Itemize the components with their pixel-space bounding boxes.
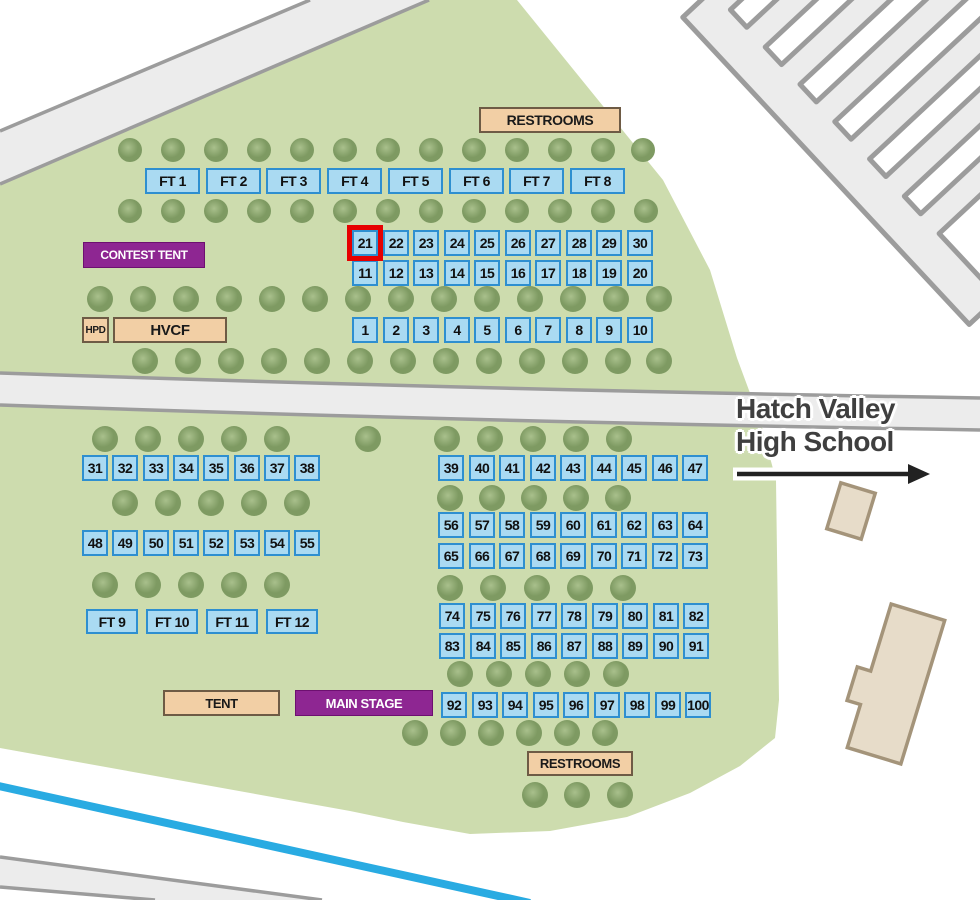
food-tent-ft-10[interactable]: FT 10	[146, 609, 198, 634]
booth-62[interactable]: 62	[621, 512, 647, 538]
booth-15[interactable]: 15	[474, 260, 500, 286]
school-label-line2: High School	[736, 425, 956, 458]
booth-90[interactable]: 90	[653, 633, 679, 659]
booth-40[interactable]: 40	[469, 455, 495, 481]
booth-72[interactable]: 72	[652, 543, 678, 569]
booth-55[interactable]: 55	[294, 530, 320, 556]
booth-43[interactable]: 43	[560, 455, 586, 481]
booth-74[interactable]: 74	[439, 603, 465, 629]
booth-52[interactable]: 52	[203, 530, 229, 556]
booth-84[interactable]: 84	[470, 633, 496, 659]
booth-24[interactable]: 24	[444, 230, 470, 256]
booth-44[interactable]: 44	[591, 455, 617, 481]
booth-79[interactable]: 79	[592, 603, 618, 629]
booth-51[interactable]: 51	[173, 530, 199, 556]
booth-94[interactable]: 94	[502, 692, 528, 718]
food-tent-ft-12[interactable]: FT 12	[266, 609, 318, 634]
food-tent-ft-4[interactable]: FT 4	[327, 168, 382, 194]
booth-45[interactable]: 45	[621, 455, 647, 481]
booth-97[interactable]: 97	[594, 692, 620, 718]
main-stage-label[interactable]: MAIN STAGE	[295, 690, 433, 716]
booth-54[interactable]: 54	[264, 530, 290, 556]
booth-65[interactable]: 65	[438, 543, 464, 569]
booth-83[interactable]: 83	[439, 633, 465, 659]
booth-11[interactable]: 11	[352, 260, 378, 286]
booth-19[interactable]: 19	[596, 260, 622, 286]
restrooms-bottom-label[interactable]: RESTROOMS	[527, 751, 633, 776]
booth-16[interactable]: 16	[505, 260, 531, 286]
booth-80[interactable]: 80	[622, 603, 648, 629]
booth-89[interactable]: 89	[622, 633, 648, 659]
booth-27[interactable]: 27	[535, 230, 561, 256]
food-tent-ft-11[interactable]: FT 11	[206, 609, 258, 634]
booth-6[interactable]: 6	[505, 317, 531, 343]
booth-85[interactable]: 85	[500, 633, 526, 659]
booth-18[interactable]: 18	[566, 260, 592, 286]
booth-82[interactable]: 82	[683, 603, 709, 629]
festival-map: 2122232425262728293011121314151617181920…	[0, 0, 980, 900]
booth-39[interactable]: 39	[438, 455, 464, 481]
booth-76[interactable]: 76	[500, 603, 526, 629]
booth-95[interactable]: 95	[533, 692, 559, 718]
booth-20[interactable]: 20	[627, 260, 653, 286]
school-label-line1: Hatch Valley	[736, 392, 956, 425]
booth-53[interactable]: 53	[234, 530, 260, 556]
booth-77[interactable]: 77	[531, 603, 557, 629]
booth-42[interactable]: 42	[530, 455, 556, 481]
food-tent-ft-9[interactable]: FT 9	[86, 609, 138, 634]
booth-7[interactable]: 7	[535, 317, 561, 343]
booth-50[interactable]: 50	[143, 530, 169, 556]
booth-29[interactable]: 29	[596, 230, 622, 256]
booth-10[interactable]: 10	[627, 317, 653, 343]
booth-32[interactable]: 32	[112, 455, 138, 481]
food-tent-ft-3[interactable]: FT 3	[266, 168, 321, 194]
booth-78[interactable]: 78	[561, 603, 587, 629]
food-tent-ft-8[interactable]: FT 8	[570, 168, 625, 194]
booth-33[interactable]: 33	[143, 455, 169, 481]
booth-41[interactable]: 41	[499, 455, 525, 481]
booth-87[interactable]: 87	[561, 633, 587, 659]
booth-4[interactable]: 4	[444, 317, 470, 343]
booth-2[interactable]: 2	[383, 317, 409, 343]
booth-1[interactable]: 1	[352, 317, 378, 343]
booth-63[interactable]: 63	[652, 512, 678, 538]
booth-66[interactable]: 66	[469, 543, 495, 569]
booth-23[interactable]: 23	[413, 230, 439, 256]
booth-13[interactable]: 13	[413, 260, 439, 286]
booth-67[interactable]: 67	[499, 543, 525, 569]
booth-96[interactable]: 96	[563, 692, 589, 718]
hvcf-label[interactable]: HVCF	[113, 317, 227, 343]
booth-28[interactable]: 28	[566, 230, 592, 256]
food-tent-ft-7[interactable]: FT 7	[509, 168, 564, 194]
booth-3[interactable]: 3	[413, 317, 439, 343]
booth-25[interactable]: 25	[474, 230, 500, 256]
booth-8[interactable]: 8	[566, 317, 592, 343]
contest-tent-label[interactable]: CONTEST TENT	[83, 242, 205, 268]
food-tent-ft-6[interactable]: FT 6	[449, 168, 504, 194]
booth-98[interactable]: 98	[624, 692, 650, 718]
booth-34[interactable]: 34	[173, 455, 199, 481]
booth-70[interactable]: 70	[591, 543, 617, 569]
booth-58[interactable]: 58	[499, 512, 525, 538]
booth-93[interactable]: 93	[472, 692, 498, 718]
booth-56[interactable]: 56	[438, 512, 464, 538]
booth-14[interactable]: 14	[444, 260, 470, 286]
booth-31[interactable]: 31	[82, 455, 108, 481]
booth-47[interactable]: 47	[682, 455, 708, 481]
booth-64[interactable]: 64	[682, 512, 708, 538]
food-tent-ft-2[interactable]: FT 2	[206, 168, 261, 194]
booth-46[interactable]: 46	[652, 455, 678, 481]
booth-17[interactable]: 17	[535, 260, 561, 286]
food-tent-ft-1[interactable]: FT 1	[145, 168, 200, 194]
booth-71[interactable]: 71	[621, 543, 647, 569]
school-label: Hatch Valley High School	[736, 392, 956, 458]
booth-38[interactable]: 38	[294, 455, 320, 481]
booth-69[interactable]: 69	[560, 543, 586, 569]
hpd-label[interactable]: HPD	[82, 317, 109, 343]
booth-36[interactable]: 36	[234, 455, 260, 481]
booth-60[interactable]: 60	[560, 512, 586, 538]
booth-100[interactable]: 100	[685, 692, 711, 718]
booth-91[interactable]: 91	[683, 633, 709, 659]
booth-30[interactable]: 30	[627, 230, 653, 256]
booth-59[interactable]: 59	[530, 512, 556, 538]
booth-5[interactable]: 5	[474, 317, 500, 343]
booth-73[interactable]: 73	[682, 543, 708, 569]
booth-49[interactable]: 49	[112, 530, 138, 556]
booth-21[interactable]: 21	[352, 230, 378, 256]
booth-22[interactable]: 22	[383, 230, 409, 256]
booth-61[interactable]: 61	[591, 512, 617, 538]
food-tent-ft-5[interactable]: FT 5	[388, 168, 443, 194]
booth-57[interactable]: 57	[469, 512, 495, 538]
booth-12[interactable]: 12	[383, 260, 409, 286]
booth-81[interactable]: 81	[653, 603, 679, 629]
booth-75[interactable]: 75	[470, 603, 496, 629]
booth-26[interactable]: 26	[505, 230, 531, 256]
booth-99[interactable]: 99	[655, 692, 681, 718]
booth-92[interactable]: 92	[441, 692, 467, 718]
restrooms-top-label[interactable]: RESTROOMS	[479, 107, 621, 133]
booth-35[interactable]: 35	[203, 455, 229, 481]
tent-label[interactable]: TENT	[163, 690, 280, 716]
booth-86[interactable]: 86	[531, 633, 557, 659]
booth-37[interactable]: 37	[264, 455, 290, 481]
booth-88[interactable]: 88	[592, 633, 618, 659]
booth-68[interactable]: 68	[530, 543, 556, 569]
booth-9[interactable]: 9	[596, 317, 622, 343]
booth-48[interactable]: 48	[82, 530, 108, 556]
